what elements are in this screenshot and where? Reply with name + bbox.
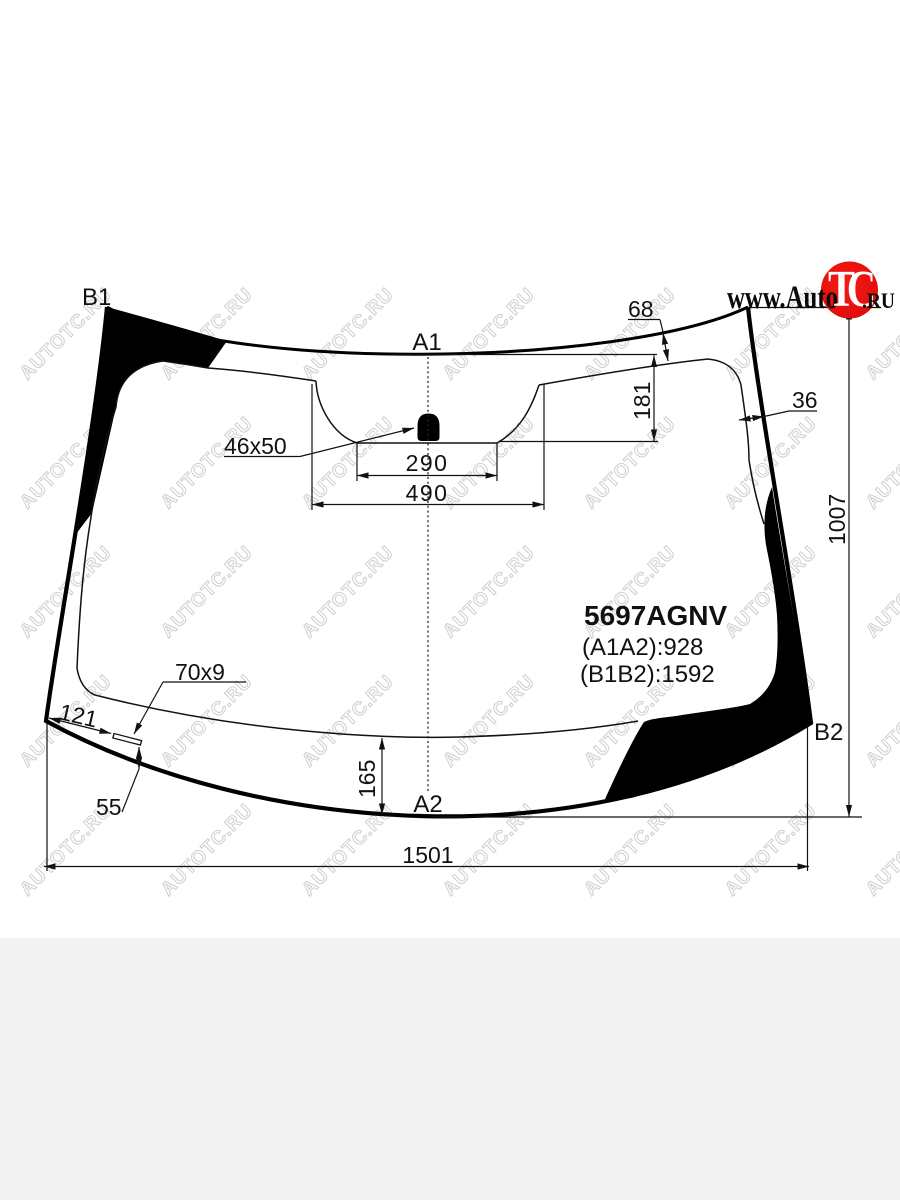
svg-text:(B1B2):1592: (B1B2):1592 [580, 661, 715, 688]
svg-text:70x9: 70x9 [175, 659, 225, 685]
svg-text:.RU: .RU [862, 288, 895, 313]
svg-text:290: 290 [406, 450, 449, 476]
svg-text:1007: 1007 [824, 494, 850, 545]
svg-text:55: 55 [96, 794, 122, 820]
svg-text:68: 68 [628, 296, 654, 322]
svg-text:B2: B2 [814, 719, 843, 746]
svg-text:www.Auto: www.Auto [727, 280, 838, 316]
svg-text:1501: 1501 [402, 842, 453, 868]
svg-text:181: 181 [629, 382, 655, 420]
svg-text:B1: B1 [82, 284, 111, 311]
svg-text:5697AGNV: 5697AGNV [584, 600, 728, 631]
svg-text:A2: A2 [413, 791, 442, 818]
svg-text:165: 165 [354, 760, 380, 798]
svg-text:46x50: 46x50 [224, 433, 287, 459]
svg-text:490: 490 [406, 480, 449, 506]
svg-text:(A1A2):928: (A1A2):928 [582, 634, 703, 661]
svg-text:36: 36 [792, 387, 818, 413]
svg-text:A1: A1 [412, 329, 441, 356]
